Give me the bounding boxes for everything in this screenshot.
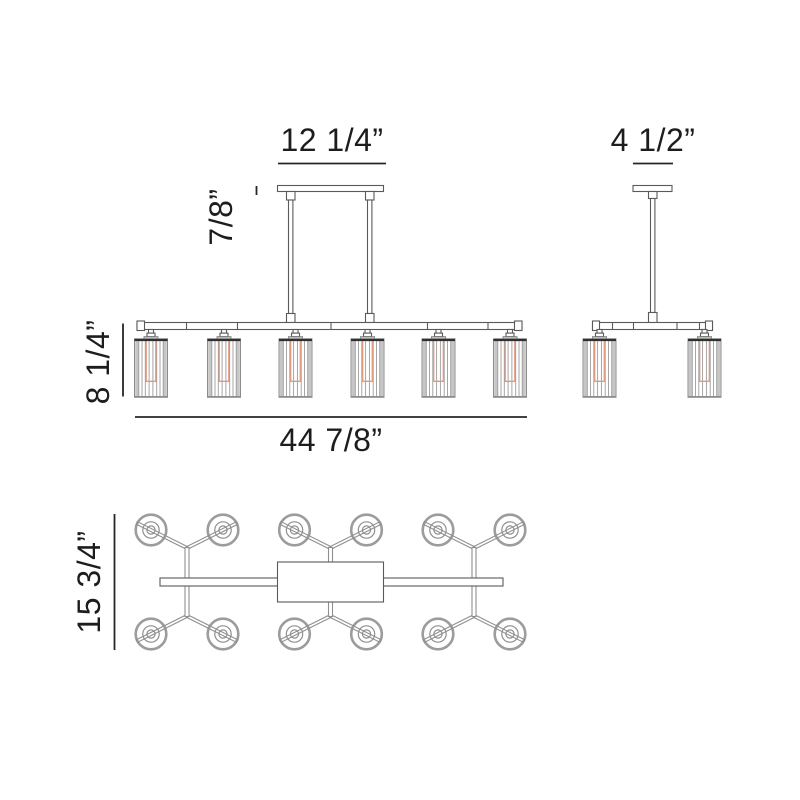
glass-shade: [583, 339, 616, 398]
arm-cluster: [136, 586, 239, 650]
rod-connector: [366, 192, 375, 201]
glass-shade: [688, 339, 721, 398]
glass-shade: [135, 339, 168, 398]
downrod: [289, 200, 293, 314]
dimension-drawing: [0, 0, 800, 800]
rod-connector: [366, 314, 375, 323]
front-view: [123, 164, 527, 418]
glass-shade: [494, 339, 527, 398]
shade-socket: [289, 330, 303, 340]
arm-cluster: [136, 515, 239, 579]
glass-shade: [351, 339, 384, 398]
rail-front: [137, 323, 522, 330]
glass-shade: [279, 339, 312, 398]
dim-label-front-fixture-height: 8 1/4”: [80, 262, 116, 462]
rod-connector: [649, 192, 658, 199]
shade-socket: [432, 330, 446, 340]
spec-sheet: 12 1/4” 4 1/2” 7/8” 8 1/4” 44 7/8” 15 3/…: [0, 0, 800, 800]
rod-connector: [287, 192, 296, 201]
shade-socket: [144, 330, 158, 340]
dim-label-plan-depth: 15 3/4”: [71, 482, 107, 682]
dim-label-front-canopy-width: 12 1/4”: [232, 122, 432, 158]
glass-shade: [422, 339, 455, 398]
dim-label-front-canopy-height: 7/8”: [203, 117, 239, 317]
canopy-side: [633, 186, 672, 192]
rail-end-cap: [137, 321, 145, 331]
canopy-front: [278, 186, 384, 192]
canopy-plan: [278, 562, 384, 602]
glass-shade: [208, 339, 241, 398]
plan-view: [115, 514, 526, 650]
side-view: [583, 164, 721, 398]
rod-connector: [287, 314, 296, 323]
downrod: [651, 199, 655, 313]
dim-label-front-overall-width: 44 7/8”: [231, 422, 431, 458]
crossbar-side: [593, 323, 713, 330]
shade-socket: [217, 330, 231, 340]
rod-connector: [649, 313, 658, 323]
dim-label-side-width: 4 1/2”: [553, 122, 753, 158]
arm-cluster: [423, 515, 526, 579]
arm-cluster: [423, 586, 526, 650]
rail-end-cap: [515, 321, 523, 331]
shade-socket: [361, 330, 375, 340]
downrod: [368, 200, 372, 314]
